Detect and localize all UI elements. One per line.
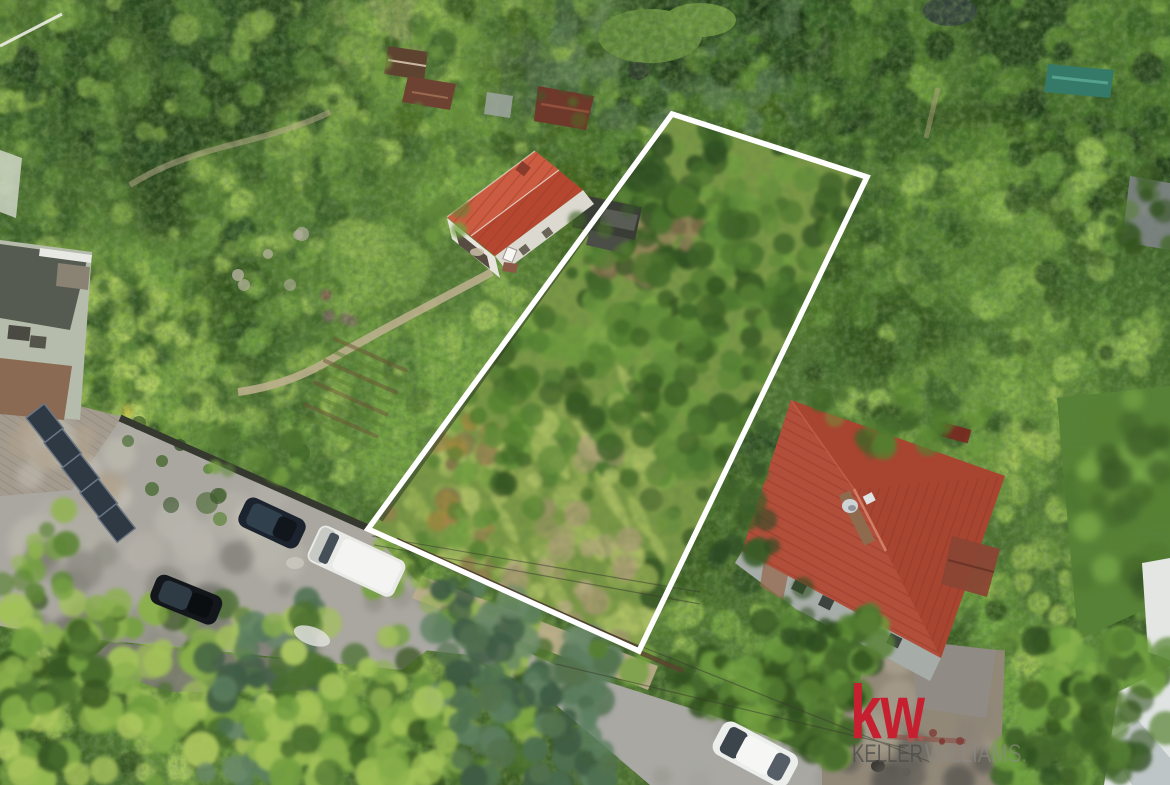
- svg-text:KELLER: KELLER: [852, 740, 923, 768]
- svg-text:WILLIAMS.: WILLIAMS.: [925, 740, 1027, 768]
